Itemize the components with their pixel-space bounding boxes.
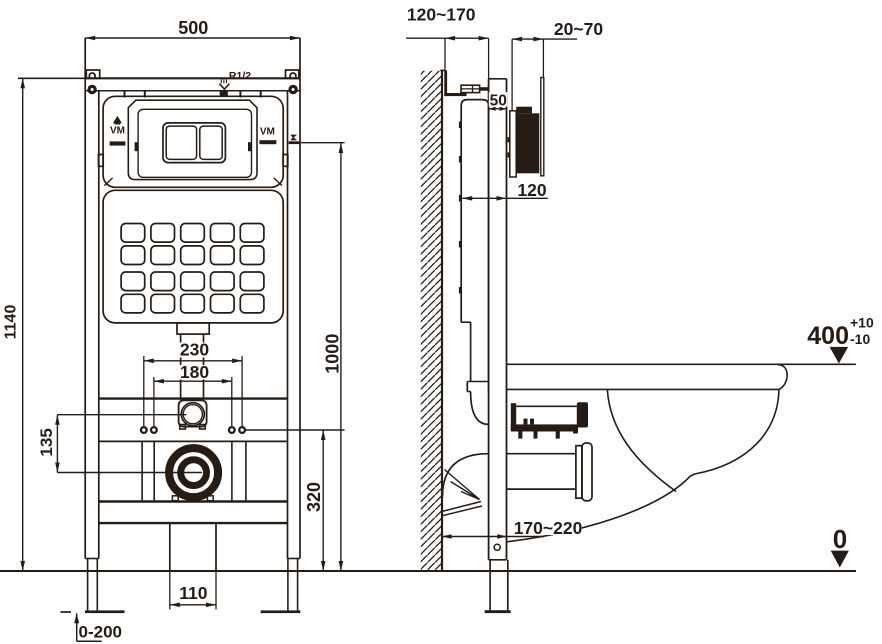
svg-text:320: 320 — [304, 482, 324, 512]
svg-text:-10: -10 — [850, 331, 870, 347]
svg-text:135: 135 — [37, 428, 56, 456]
svg-text:R1/2: R1/2 — [229, 70, 251, 82]
svg-text:1140: 1140 — [3, 305, 20, 340]
svg-text:110: 110 — [179, 583, 207, 603]
svg-text:120~170: 120~170 — [407, 5, 476, 25]
svg-text:+10: +10 — [850, 315, 874, 331]
svg-text:120: 120 — [517, 180, 546, 200]
svg-text:VM: VM — [110, 126, 125, 137]
svg-text:170~220: 170~220 — [514, 518, 583, 538]
svg-text:500: 500 — [178, 18, 208, 38]
svg-text:50: 50 — [490, 92, 507, 109]
svg-text:1000: 1000 — [323, 334, 343, 374]
svg-text:230: 230 — [180, 340, 209, 360]
svg-text:VM: VM — [260, 127, 275, 138]
svg-text:400: 400 — [807, 322, 849, 350]
svg-text:20~70: 20~70 — [554, 19, 603, 39]
svg-text:0-200: 0-200 — [79, 623, 122, 642]
svg-text:180: 180 — [180, 362, 209, 382]
svg-text:0: 0 — [833, 524, 847, 554]
